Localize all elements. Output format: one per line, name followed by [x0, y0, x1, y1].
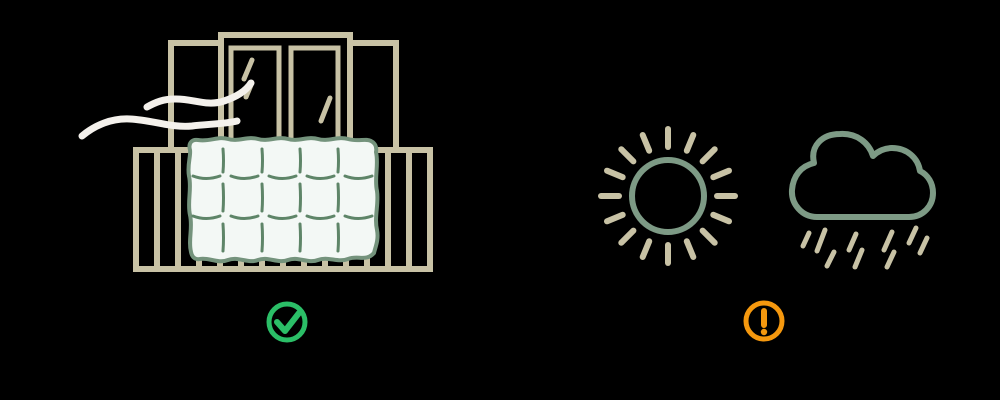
sun-disc — [632, 160, 704, 232]
sun-rays — [601, 129, 735, 263]
cloud-outline — [792, 134, 933, 217]
warning-circle-icon — [746, 303, 782, 339]
check-circle-icon — [269, 304, 305, 340]
scene-duvet-airing — [0, 0, 500, 400]
wind-lines-icon — [82, 83, 251, 136]
duvet-airing-illustration — [0, 0, 500, 400]
right-door-panel — [291, 48, 338, 141]
weather-illustration — [500, 0, 1000, 400]
rain-drops-icon — [803, 228, 927, 267]
sun-icon — [601, 129, 735, 263]
scene-weather — [500, 0, 1000, 400]
quilted-duvet-icon — [188, 138, 377, 261]
door-outer-frame — [221, 35, 350, 141]
duvet-body — [188, 138, 377, 261]
rain-cloud-icon — [792, 134, 933, 267]
window-door-frame-icon — [171, 35, 396, 150]
glass-reflection-icon — [244, 60, 330, 121]
illustration-canvas — [0, 0, 1000, 400]
right-side-window — [352, 43, 396, 150]
